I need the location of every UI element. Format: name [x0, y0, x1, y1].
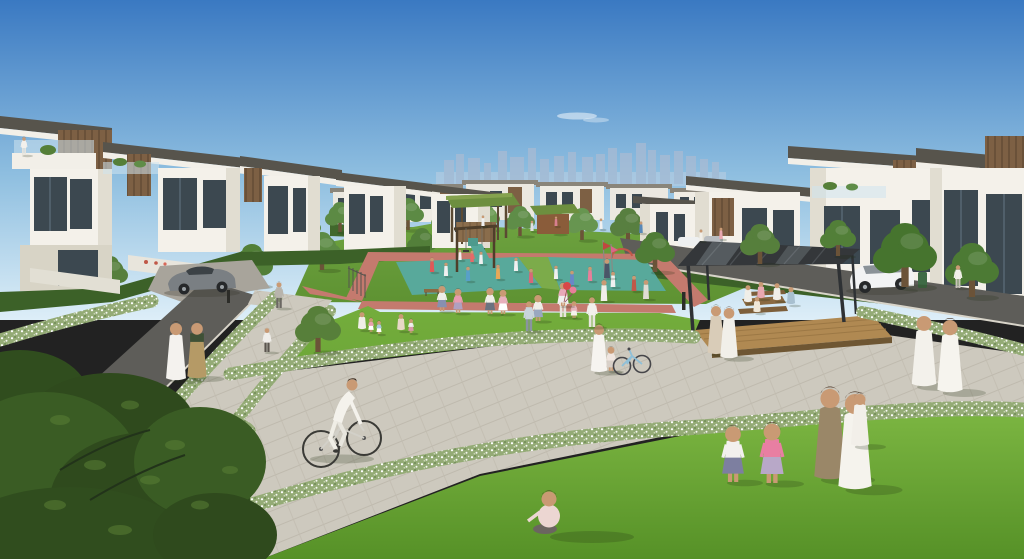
person-far-dot-7 — [719, 227, 723, 239]
person-play-adult-a — [604, 259, 610, 278]
person-playing-kid-3 — [485, 287, 495, 314]
person-play-kid-e — [496, 264, 501, 279]
person-play-kid-d — [479, 251, 483, 264]
person-far-dot-1 — [481, 215, 484, 226]
person-family-girl-white — [722, 425, 744, 482]
person-playing-kid-1 — [437, 285, 447, 311]
person-far-dot-2 — [530, 220, 533, 231]
person-far-dot-4 — [599, 218, 602, 229]
person-play-kid-a — [430, 257, 435, 272]
person-lawn-toddler — [571, 301, 578, 318]
person-play-kid-i — [570, 270, 575, 285]
person-far-dot-3 — [555, 216, 558, 226]
bollard — [227, 290, 230, 303]
person-family-girl-pink — [760, 422, 783, 483]
person-play-adult-b — [601, 280, 608, 301]
person-playing-kid-4 — [498, 289, 507, 314]
person-play-kid-j — [588, 266, 593, 281]
community-render — [0, 0, 1024, 559]
person-swing-kid-1 — [470, 250, 474, 262]
person-picnic-kid-2 — [376, 321, 381, 334]
person-play-kid-g — [529, 268, 534, 283]
distant-van — [678, 237, 700, 246]
person-play-kid-b — [444, 262, 448, 276]
person-far-dot-6 — [699, 229, 703, 241]
person-playing-kid-2 — [453, 288, 462, 313]
person-play-kid-l — [632, 276, 637, 292]
person-play-kid-h — [554, 265, 558, 279]
person-swing-kid-2 — [458, 249, 461, 260]
person-picnic-kid-3 — [408, 319, 413, 333]
person-far-dot-5 — [639, 221, 643, 233]
person-play-kid-c — [466, 266, 471, 281]
person-play-adult-c — [643, 280, 649, 299]
person-picnic-kid-1 — [368, 318, 373, 332]
person-play-kid-f — [514, 257, 518, 271]
bollard — [682, 292, 686, 310]
